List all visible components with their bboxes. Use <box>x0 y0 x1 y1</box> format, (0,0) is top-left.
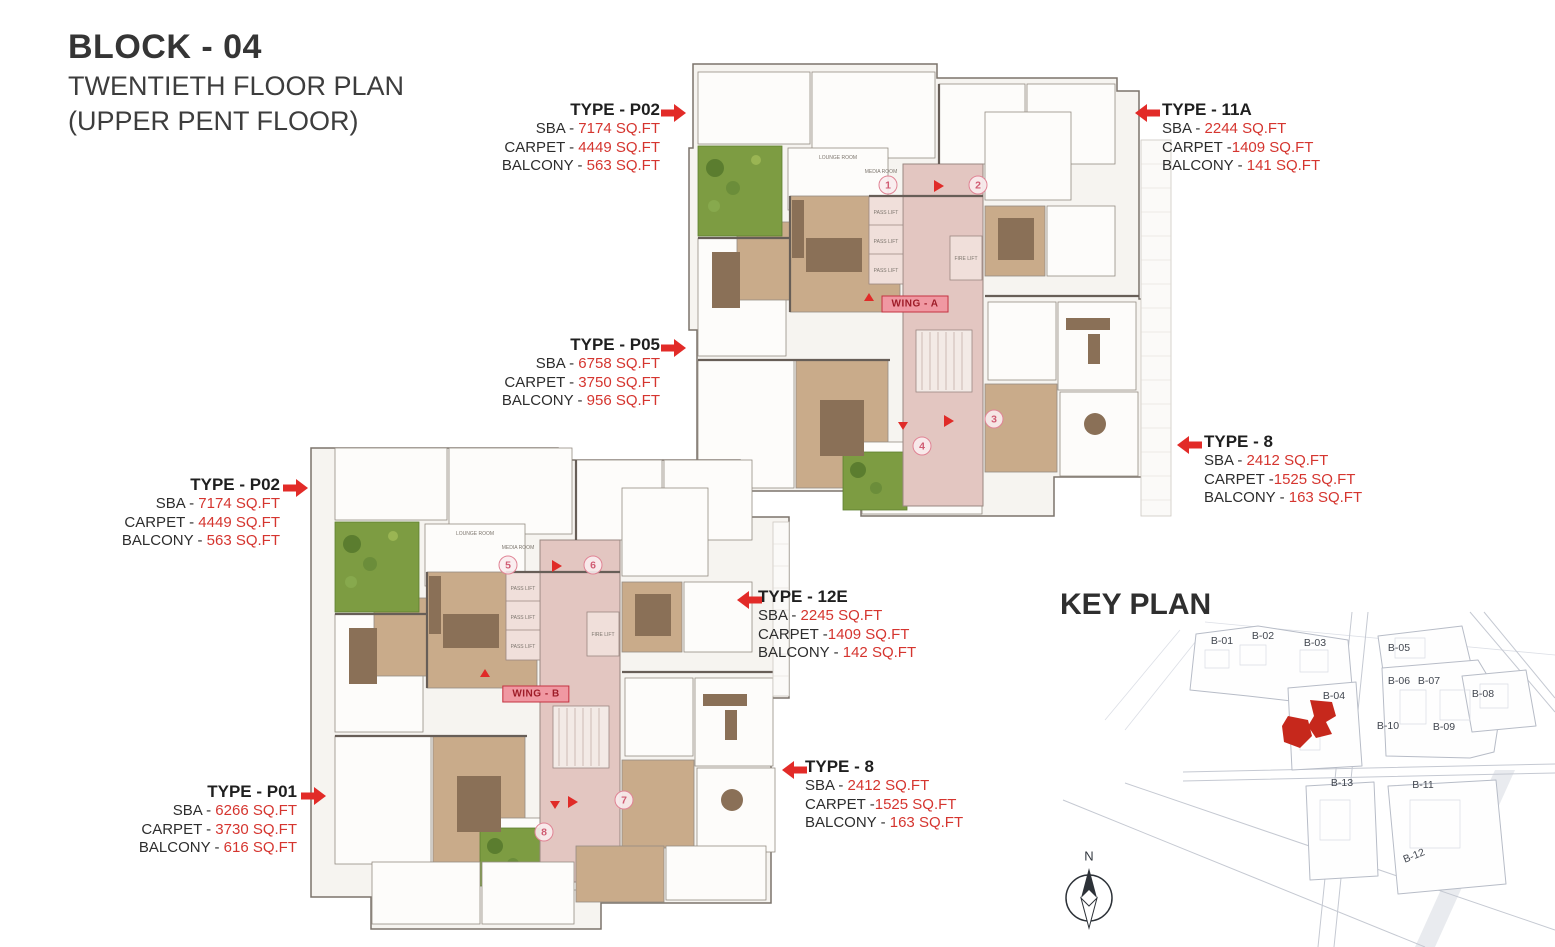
floor-title: TWENTIETH FLOOR PLAN <box>68 71 404 102</box>
unit-marker-3: 3 <box>985 410 1004 429</box>
callout-type-8-bottom: TYPE - 8 SBA - 2412 SQ.FT CARPET -1525 S… <box>805 757 967 833</box>
callout-type-label: TYPE - P02 <box>118 475 280 495</box>
callout-type-p05: TYPE - P05 SBA - 6758 SQ.FT CARPET - 375… <box>498 335 660 411</box>
pass-lift-label: PASS LIFT <box>874 210 899 216</box>
unit-marker-8: 8 <box>535 823 554 842</box>
block-label-b13: B-13 <box>1331 777 1353 789</box>
keyplan-map <box>1063 612 1555 947</box>
right-arrow-icon <box>661 103 687 123</box>
unit-marker-2: 2 <box>969 176 988 195</box>
lounge-room-label: LOUNGE ROOM <box>819 155 857 161</box>
callout-type-label: TYPE - 12E <box>758 587 920 607</box>
wing-a-balcony-strip <box>1141 140 1171 516</box>
right-arrow-icon <box>301 786 327 806</box>
title-block: BLOCK - 04 TWENTIETH FLOOR PLAN (UPPER P… <box>68 28 404 137</box>
callout-type-8-right: TYPE - 8 SBA - 2412 SQ.FT CARPET -1525 S… <box>1204 432 1366 508</box>
fire-lift-label: FIRE LIFT <box>954 256 977 262</box>
unit-marker-6: 6 <box>584 556 603 575</box>
block-label-b02: B-02 <box>1252 630 1274 642</box>
fire-lift-block: FIRE LIFT <box>950 236 982 280</box>
unit-marker-5: 5 <box>499 556 518 575</box>
floor-plan-page: PASS LIFT PASS LIFT PASS LIFT FIRE LIFT <box>0 0 1555 947</box>
callout-type-p02-top: TYPE - P02 SBA - 7174 SQ.FT CARPET - 444… <box>498 100 660 176</box>
callout-type-11a: TYPE - 11A SBA - 2244 SQ.FT CARPET -1409… <box>1162 100 1324 176</box>
unit-marker-4: 4 <box>913 437 932 456</box>
callout-type-p01: TYPE - P01 SBA - 6266 SQ.FT CARPET - 373… <box>135 782 297 858</box>
callout-type-label: TYPE - 8 <box>1204 432 1366 452</box>
callout-type-label: TYPE - P05 <box>498 335 660 355</box>
block-title: BLOCK - 04 <box>68 28 404 67</box>
block-label-b01: B-01 <box>1211 635 1233 647</box>
pass-lift-label: PASS LIFT <box>874 268 899 274</box>
keyplan-title: KEY PLAN <box>1060 588 1211 622</box>
staircase <box>916 330 972 392</box>
media-room-label: MEDIA ROOM <box>865 169 898 175</box>
wing-a-label: WING - A <box>882 296 949 313</box>
block-label-b03: B-03 <box>1304 637 1326 649</box>
block-label-b11: B-11 <box>1412 779 1433 791</box>
block-label-b06: B-06 <box>1388 675 1410 687</box>
unit-marker-1: 1 <box>879 176 898 195</box>
right-arrow-icon <box>661 338 687 358</box>
left-arrow-icon <box>1134 103 1160 123</box>
block-label-b10: B-10 <box>1377 720 1399 732</box>
callout-type-label: TYPE - 11A <box>1162 100 1324 120</box>
north-compass-icon <box>1066 868 1112 928</box>
floor-subtitle: (UPPER PENT FLOOR) <box>68 106 404 137</box>
right-arrow-icon <box>283 478 309 498</box>
block-label-b05: B-05 <box>1388 642 1410 654</box>
left-arrow-icon <box>736 590 762 610</box>
unit-marker-7: 7 <box>615 791 634 810</box>
pass-lift-block: PASS LIFT PASS LIFT PASS LIFT <box>869 196 903 284</box>
block-label-b08: B-08 <box>1472 688 1494 700</box>
north-label: N <box>1084 849 1093 864</box>
callout-type-label: TYPE - 8 <box>805 757 967 777</box>
callout-type-label: TYPE - P01 <box>135 782 297 802</box>
callout-type-label: TYPE - P02 <box>498 100 660 120</box>
left-arrow-icon <box>781 760 807 780</box>
pass-lift-label: PASS LIFT <box>874 239 899 245</box>
block-label-b04: B-04 <box>1323 690 1345 702</box>
callout-type-12e: TYPE - 12E SBA - 2245 SQ.FT CARPET -1409… <box>758 587 920 663</box>
callout-type-p02-left: TYPE - P02 SBA - 7174 SQ.FT CARPET - 444… <box>118 475 280 551</box>
block-label-b09: B-09 <box>1433 721 1455 733</box>
wing-b-label: WING - B <box>502 686 569 703</box>
block-label-b07: B-07 <box>1418 675 1440 687</box>
left-arrow-icon <box>1176 435 1202 455</box>
